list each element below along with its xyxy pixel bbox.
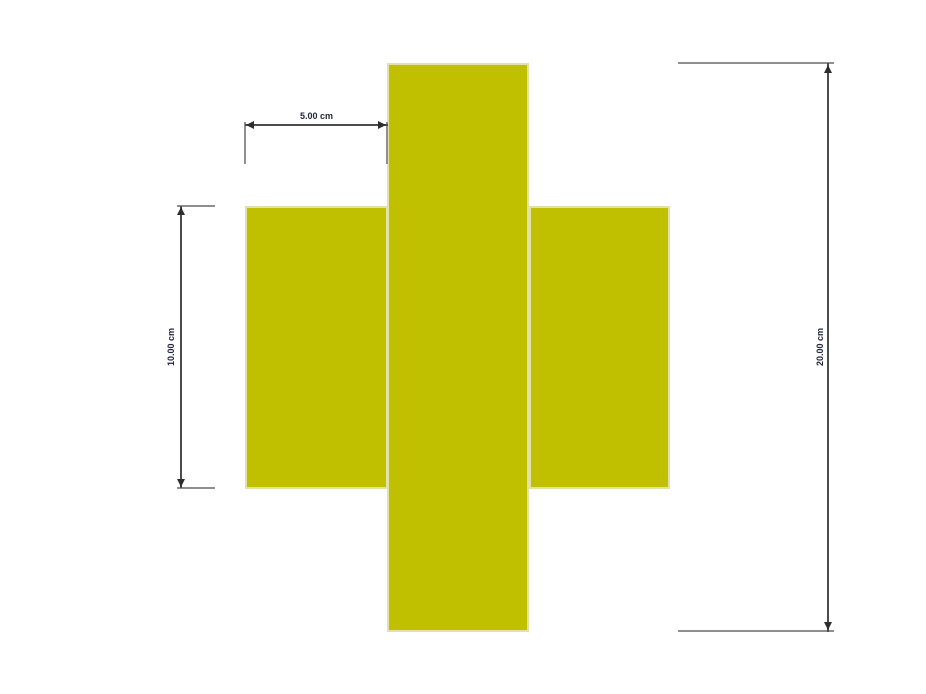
extension-line (386, 122, 388, 164)
cross-left-arm[interactable] (245, 206, 388, 489)
cross-right-arm[interactable] (529, 206, 670, 489)
dimension-line (245, 124, 388, 126)
dimension-label: 5.00 cm (245, 110, 388, 122)
arrowhead-down-icon (177, 479, 185, 487)
dimension-line (180, 206, 182, 488)
dimension-line (827, 63, 829, 632)
extension-line (678, 62, 834, 64)
arrowhead-down-icon (824, 622, 832, 630)
extension-line (177, 487, 215, 489)
arrowhead-left-icon (246, 121, 254, 129)
arrowhead-right-icon (378, 121, 386, 129)
arrowhead-up-icon (824, 65, 832, 73)
dimension-label: 10.00 cm (165, 312, 177, 382)
extension-line (678, 630, 834, 632)
drawing-canvas: 5.00 cm 10.00 cm 20.00 cm (0, 0, 926, 694)
cross-center-column[interactable] (387, 63, 529, 632)
dimension-label: 20.00 cm (814, 312, 826, 382)
arrowhead-up-icon (177, 207, 185, 215)
